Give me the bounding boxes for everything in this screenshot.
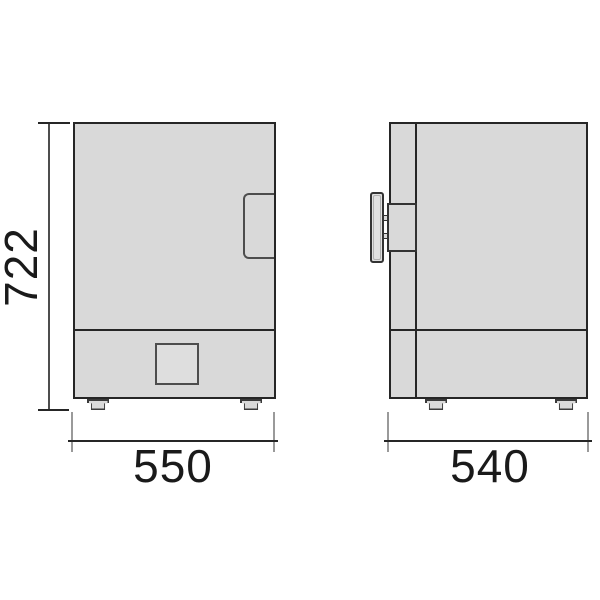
front-control-window [155,343,199,385]
width-extension-right [273,412,275,452]
front-panel-divider-line [73,329,276,331]
front-foot-left [87,399,109,410]
side-handle-bar-face [373,195,381,260]
side-foot-right [555,399,577,410]
side-panel-divider-line [389,329,588,331]
side-foot-left [425,399,447,410]
height-dimension-label: 722 [0,167,44,367]
width-dimension-label: 550 [73,443,273,489]
height-dimension-line [48,123,50,411]
front-foot-right [240,399,262,410]
side-handle-bar [370,192,384,263]
side-door-edge-line [415,122,417,399]
height-top-tick [38,122,70,124]
front-door-handle [243,193,274,259]
side-handle-mount [387,203,417,252]
depth-extension-left [387,412,389,452]
height-bottom-tick [38,409,69,411]
drawing-canvas: 722 550 540 [0,0,600,600]
depth-dimension-label: 540 [390,443,590,489]
side-body [389,122,588,399]
